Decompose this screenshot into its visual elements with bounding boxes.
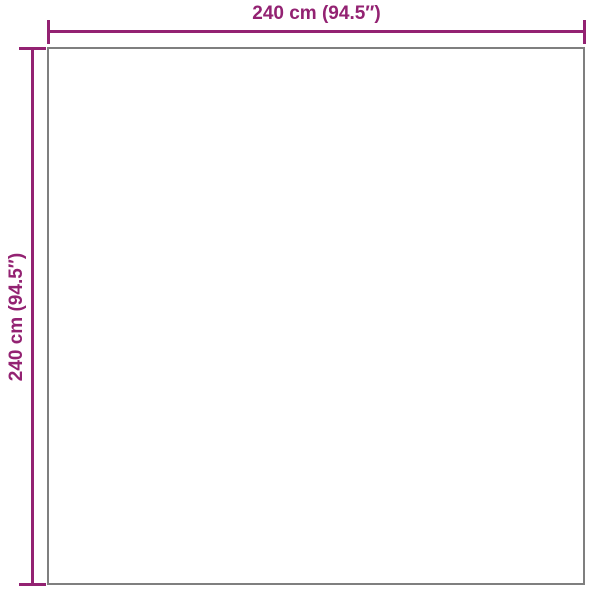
height-dimension-label-wrapper: 240 cm (94.5″) — [3, 48, 31, 585]
width-dimension-label: 240 cm (94.5″) — [48, 2, 585, 26]
dimension-diagram: 240 cm (94.5″) 240 cm (94.5″) — [0, 0, 600, 600]
product-outline-square — [47, 47, 585, 585]
width-dimension-line — [48, 30, 585, 33]
height-dimension-line — [31, 48, 34, 585]
height-dimension-label: 240 cm (94.5″) — [6, 252, 28, 380]
